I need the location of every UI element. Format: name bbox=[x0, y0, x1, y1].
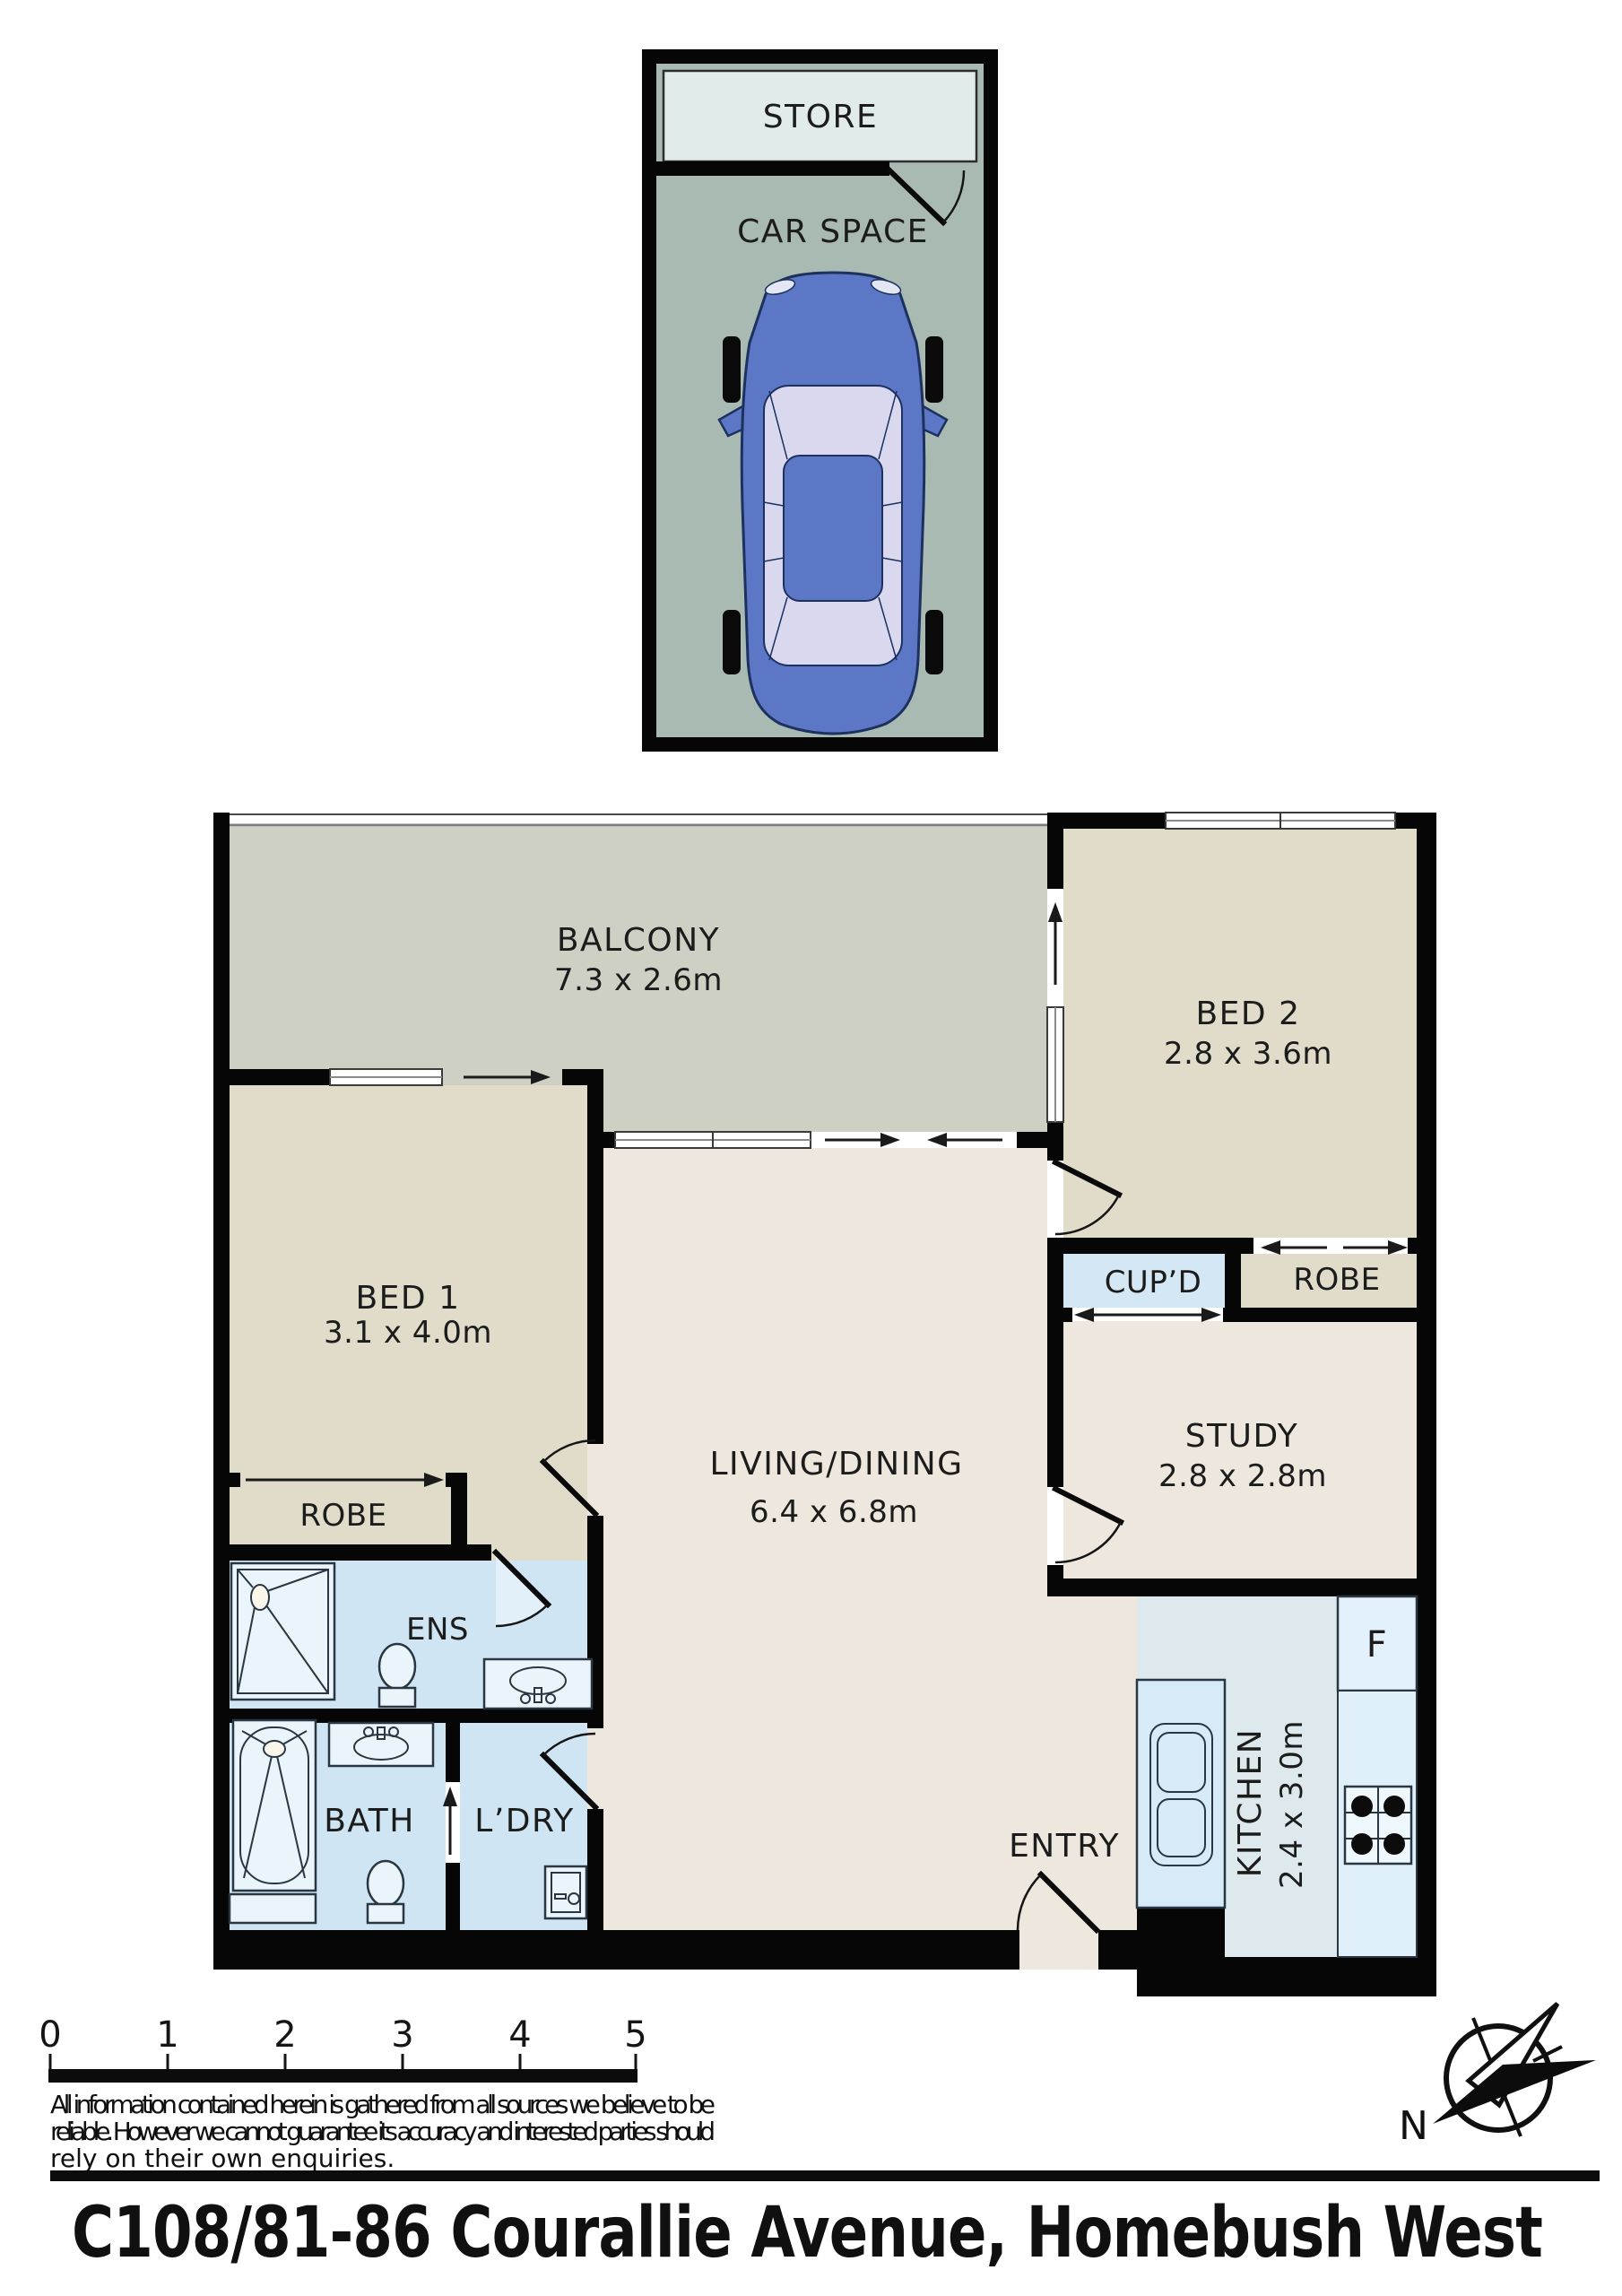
cupd-slider-arrows bbox=[1074, 1308, 1221, 1322]
floorplan-page: STORE CAR SPACE bbox=[0, 0, 1622, 2296]
compass-north-label: N bbox=[1399, 2103, 1428, 2149]
scale-tick-1: 1 bbox=[156, 2014, 178, 2056]
footer-rule bbox=[50, 2170, 1600, 2181]
fridge-label: F bbox=[1366, 1624, 1389, 1665]
scale-tick-3: 3 bbox=[391, 2014, 413, 2056]
car-space-label: CAR SPACE bbox=[737, 213, 929, 250]
kitchen-dims: 2.4 x 3.0m bbox=[1274, 1720, 1310, 1889]
scale-tick-2: 2 bbox=[273, 2014, 296, 2056]
scale-tick-lines bbox=[50, 2054, 636, 2071]
kitchen-island bbox=[1137, 1680, 1225, 1908]
kitchen-counter bbox=[1338, 1691, 1417, 1957]
living-dims: 6.4 x 6.8m bbox=[750, 1494, 918, 1530]
scale-tick-0: 0 bbox=[39, 2014, 61, 2056]
bed1-dims: 3.1 x 4.0m bbox=[324, 1315, 492, 1351]
living-label: LIVING/DINING bbox=[709, 1446, 963, 1483]
car-icon bbox=[719, 273, 947, 734]
cooktop bbox=[1345, 1787, 1411, 1864]
bed2-window bbox=[1166, 813, 1395, 829]
study-dims: 2.8 x 2.8m bbox=[1158, 1458, 1327, 1494]
bath-label: BATH bbox=[324, 1803, 415, 1839]
bed2-balcony-window bbox=[1047, 1007, 1063, 1122]
scale-bar-rule bbox=[48, 2069, 638, 2083]
cupd-label: CUP’D bbox=[1105, 1265, 1202, 1300]
entry-label: ENTRY bbox=[1009, 1828, 1120, 1865]
robe2-slider-arrows bbox=[1261, 1240, 1408, 1255]
floorplan-canvas: STORE CAR SPACE bbox=[0, 0, 1622, 2296]
bath-toilet bbox=[368, 1861, 403, 1923]
store-label: STORE bbox=[763, 99, 878, 135]
address-title: C108/81-86 Courallie Avenue, Homebush We… bbox=[72, 2193, 1542, 2274]
robe1-label: ROBE bbox=[299, 1498, 386, 1534]
washing-machine bbox=[545, 1866, 586, 1918]
garage-module: STORE CAR SPACE bbox=[642, 49, 998, 752]
ldry-label: L’DRY bbox=[474, 1803, 574, 1839]
scale-tick-5: 5 bbox=[624, 2014, 646, 2056]
disclaimer-line3: rely on their own enquiries. bbox=[50, 2144, 395, 2173]
disclaimer-line2: reliable. However we cannot guarantee it… bbox=[50, 2117, 716, 2146]
disclaimer-line1: All information contained herein is gath… bbox=[50, 2090, 716, 2119]
ens-toilet bbox=[379, 1644, 415, 1707]
living-window bbox=[615, 1132, 811, 1148]
study-label: STUDY bbox=[1185, 1418, 1298, 1455]
ens-vanity bbox=[484, 1659, 592, 1709]
ens-shower bbox=[231, 1563, 334, 1700]
compass-icon: N bbox=[1399, 2004, 1596, 2149]
bed2-floor bbox=[1063, 829, 1417, 1238]
kitchen-label: KITCHEN bbox=[1232, 1728, 1269, 1878]
scale-tick-4: 4 bbox=[508, 2014, 531, 2056]
living-balcony-slider-arrows bbox=[825, 1133, 1002, 1147]
disclaimer: All information contained herein is gath… bbox=[50, 2090, 716, 2173]
bed2-label: BED 2 bbox=[1195, 996, 1300, 1032]
ens-label: ENS bbox=[406, 1612, 469, 1648]
bed1-label: BED 1 bbox=[355, 1280, 460, 1317]
balcony-label: BALCONY bbox=[557, 922, 720, 959]
scale-bar: 0 1 2 3 4 5 bbox=[39, 2014, 646, 2083]
bed2-balcony-slider-arrow bbox=[1048, 902, 1063, 985]
bath-sink bbox=[329, 1723, 433, 1766]
balcony-dims: 7.3 x 2.6m bbox=[554, 962, 723, 998]
bed1-window bbox=[330, 1069, 442, 1085]
robe2-label: ROBE bbox=[1293, 1262, 1380, 1298]
bed2-dims: 2.8 x 3.6m bbox=[1164, 1036, 1332, 1072]
car-roof bbox=[784, 456, 882, 601]
